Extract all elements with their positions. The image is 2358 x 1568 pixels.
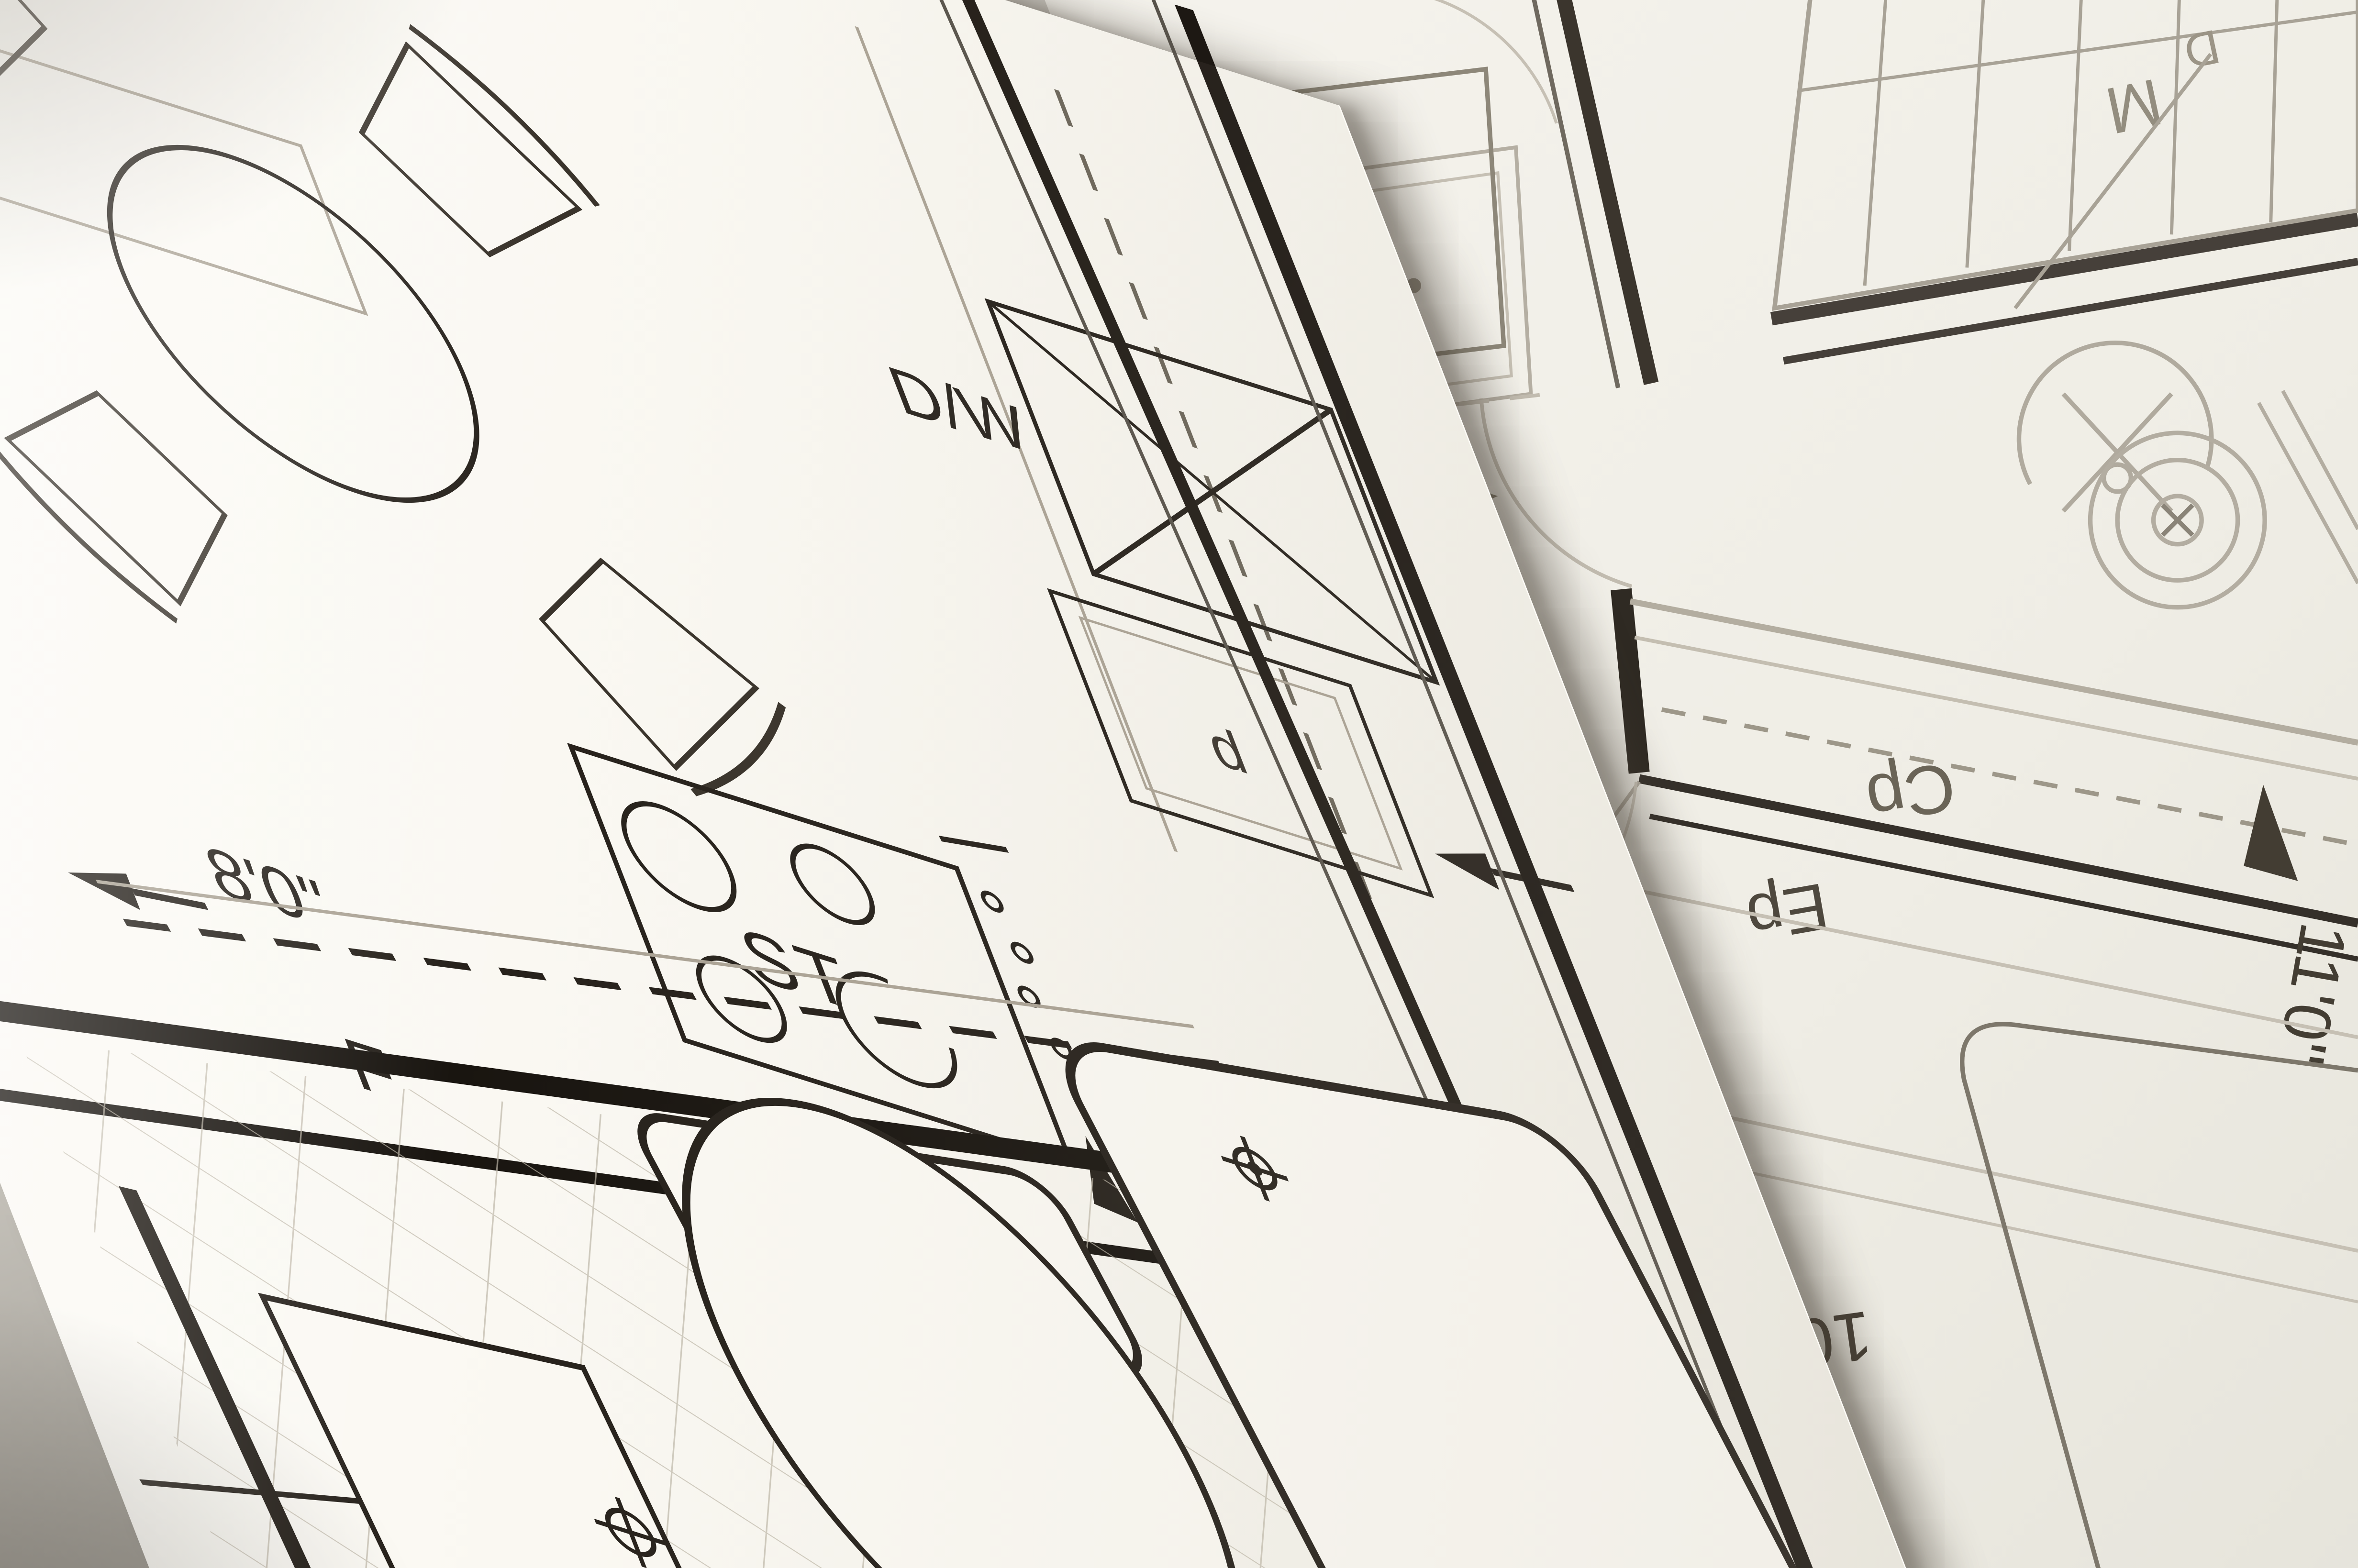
ceiling-fixture — [2091, 433, 2265, 607]
round-table — [57, 102, 530, 546]
dining-set — [0, 0, 856, 852]
chair — [528, 546, 795, 805]
svg-text:8'0": 8'0" — [194, 830, 343, 945]
chair — [0, 0, 59, 101]
counter-outline — [0, 0, 366, 314]
counter-dashed-centerline — [1057, 90, 1406, 992]
burner — [781, 836, 884, 932]
entry-label: Ep — [1741, 869, 1834, 955]
chair — [332, 21, 603, 283]
blueprint-photo: M D F 8'0 — [0, 0, 2358, 1568]
sink-label: d — [1197, 711, 1256, 787]
stove-label: ST — [728, 910, 868, 1028]
